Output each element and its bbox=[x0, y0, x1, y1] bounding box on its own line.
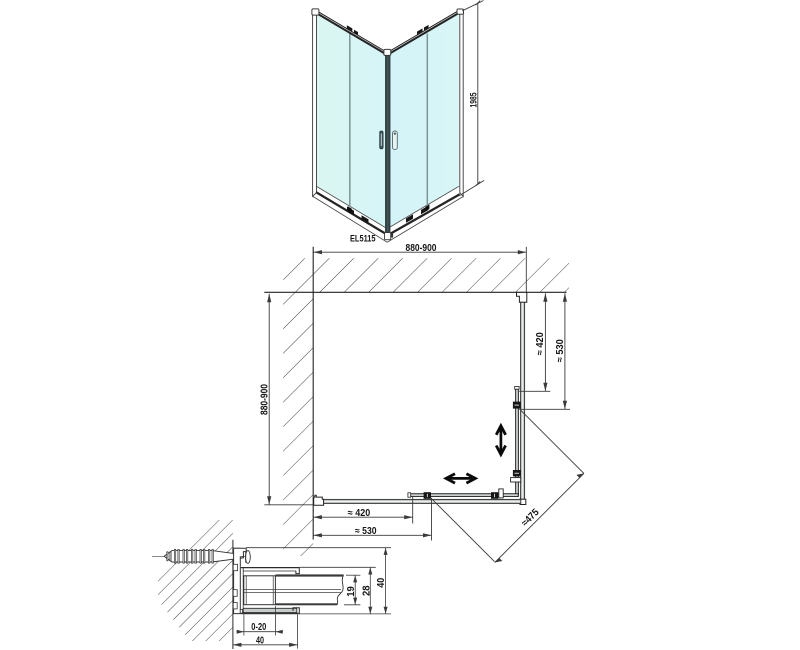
svg-text:40: 40 bbox=[256, 636, 264, 647]
svg-text:880-900: 880-900 bbox=[260, 384, 271, 415]
svg-text:≈ 420: ≈ 420 bbox=[348, 508, 371, 519]
svg-text:0-20: 0-20 bbox=[251, 622, 266, 633]
svg-text:≈ 420: ≈ 420 bbox=[535, 332, 546, 355]
svg-text:EL5115: EL5115 bbox=[350, 233, 376, 243]
svg-text:≈ 530: ≈ 530 bbox=[355, 526, 377, 537]
svg-text:19: 19 bbox=[346, 586, 357, 597]
svg-text:≈475: ≈475 bbox=[520, 507, 542, 529]
svg-text:40: 40 bbox=[376, 577, 387, 587]
svg-text:1985: 1985 bbox=[468, 93, 478, 108]
svg-text:≈ 530: ≈ 530 bbox=[555, 339, 566, 362]
svg-text:28: 28 bbox=[361, 585, 372, 596]
svg-text:880-900: 880-900 bbox=[406, 243, 437, 254]
